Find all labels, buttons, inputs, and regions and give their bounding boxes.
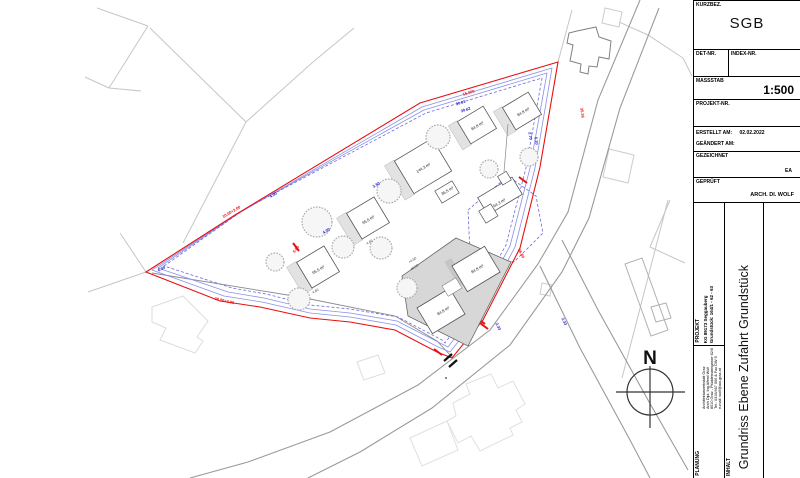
dim-label: 30.62	[460, 105, 472, 113]
gezeichnet-cell: GEZEICHNET EA	[694, 152, 800, 178]
projekt-label: PROJEKT	[695, 319, 701, 343]
tree	[377, 179, 401, 203]
projekt-line: Grundstück: 164/1 - 62 - 63	[709, 286, 714, 343]
erstellt-value: 02.02.2022	[740, 130, 765, 136]
kurzbez-cell: KURZBEZ. SGB	[694, 1, 800, 50]
geprueft-label: GEPRÜFT	[696, 179, 720, 185]
tree	[288, 288, 310, 310]
short-code: SGB	[694, 15, 800, 32]
projekt-cell: PROJEKT KG 89173 Seggauberg Grundstück: …	[694, 203, 725, 346]
sheet-title: Grundriss Ebene Zufahrt Grundstück	[737, 265, 751, 469]
tree	[397, 278, 417, 298]
site-plan-sheet: 10.00+2.00 15.000 5.00 35.36 28.00+2.00 …	[0, 0, 800, 478]
projekt-line: KG 89173 Seggauberg	[703, 286, 708, 343]
tree	[480, 160, 498, 178]
dates-cell: ERSTELLT AM: 02.02.2022 GEÄNDERT AM:	[694, 127, 800, 152]
tree	[332, 236, 354, 258]
kurzbez-label: KURZBEZ.	[696, 2, 721, 8]
massstab-cell: MASSSTAB 1:500	[694, 77, 800, 100]
tree	[266, 253, 284, 271]
erstellt-label: ERSTELLT AM:	[696, 130, 732, 136]
small-label: 4.60	[312, 288, 320, 295]
geprueft-cell: GEPRÜFT ARCH. DI. WOLF	[694, 178, 800, 203]
dim-label: 35.36	[579, 108, 585, 119]
gezeichnet-value: EA	[785, 168, 792, 174]
det-nr-label: DET-NR.	[696, 51, 716, 57]
projekt-nr-label: PROJEKT-NR.	[696, 101, 730, 107]
north-label: N	[643, 348, 657, 369]
site-plan-drawing: 10.00+2.00 15.000 5.00 35.36 28.00+2.00 …	[0, 0, 693, 478]
inhalt-label: INHALT	[726, 458, 732, 476]
index-nr-cell: INDEX-NR.	[729, 50, 800, 77]
geprueft-value: ARCH. DI. WOLF	[750, 192, 794, 198]
planung-cell: PLANUNG Architekturwerkstatt Graz Arch D…	[694, 346, 725, 478]
geaendert-label: GEÄNDERT AM:	[696, 141, 735, 147]
det-nr-cell: DET-NR.	[694, 50, 729, 77]
empty-cell	[764, 203, 800, 478]
tree	[370, 237, 392, 259]
dim-label: 5.20	[534, 137, 540, 146]
building-east-group	[468, 170, 525, 223]
planung-label: PLANUNG	[695, 451, 701, 476]
index-nr-label: INDEX-NR.	[731, 51, 761, 57]
gezeichnet-label: GEZEICHNET	[696, 153, 728, 159]
projekt-nr-cell: PROJEKT-NR.	[694, 100, 800, 127]
tree	[520, 148, 538, 166]
dim-label: 5.00	[291, 244, 300, 254]
tree	[426, 125, 450, 149]
dim-label: 36.80	[517, 248, 526, 260]
dim-label: 2.33	[560, 317, 568, 327]
road-edges	[190, 0, 688, 478]
massstab-label: MASSSTAB	[696, 78, 724, 84]
dim-label: 2.33	[494, 322, 502, 332]
neighbour-buildings	[152, 8, 671, 466]
dim-label: 2.70	[528, 132, 534, 141]
planung-line: e-mail: wolf@aw-graz.at	[718, 348, 722, 409]
scale-value: 1:500	[763, 83, 794, 97]
dim-label: 30.01	[455, 98, 467, 106]
inhalt-cell: INHALT Grundriss Ebene Zufahrt Grundstüc…	[725, 203, 764, 478]
title-block: KURZBEZ. SGB DET-NR. INDEX-NR. MASSSTAB …	[693, 0, 800, 478]
